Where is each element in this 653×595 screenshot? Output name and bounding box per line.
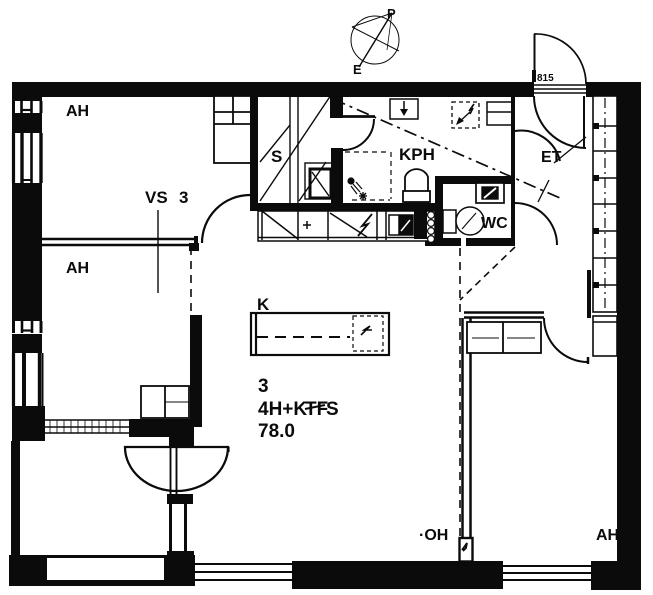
svg-text:78.0: 78.0 (258, 421, 295, 442)
svg-text:KPH: KPH (399, 145, 435, 164)
svg-text:AH: AH (66, 103, 89, 120)
svg-text:S: S (271, 147, 282, 166)
svg-text:3: 3 (258, 376, 269, 397)
svg-text:AH: AH (66, 260, 89, 277)
svg-text:S: S (326, 399, 339, 420)
svg-text:3: 3 (179, 188, 188, 207)
svg-text:AH: AH (596, 527, 619, 544)
svg-text:·OH: ·OH (419, 527, 448, 544)
svg-text:4H+K: 4H+K (258, 399, 307, 420)
svg-text:E: E (353, 62, 362, 77)
svg-text:815: 815 (537, 73, 554, 84)
svg-text:ET: ET (541, 149, 562, 166)
svg-text:P: P (387, 6, 396, 21)
svg-text:WC: WC (481, 215, 508, 232)
svg-text:VS: VS (145, 188, 168, 207)
svg-text:K: K (257, 295, 270, 314)
svg-text:TF: TF (305, 399, 328, 420)
